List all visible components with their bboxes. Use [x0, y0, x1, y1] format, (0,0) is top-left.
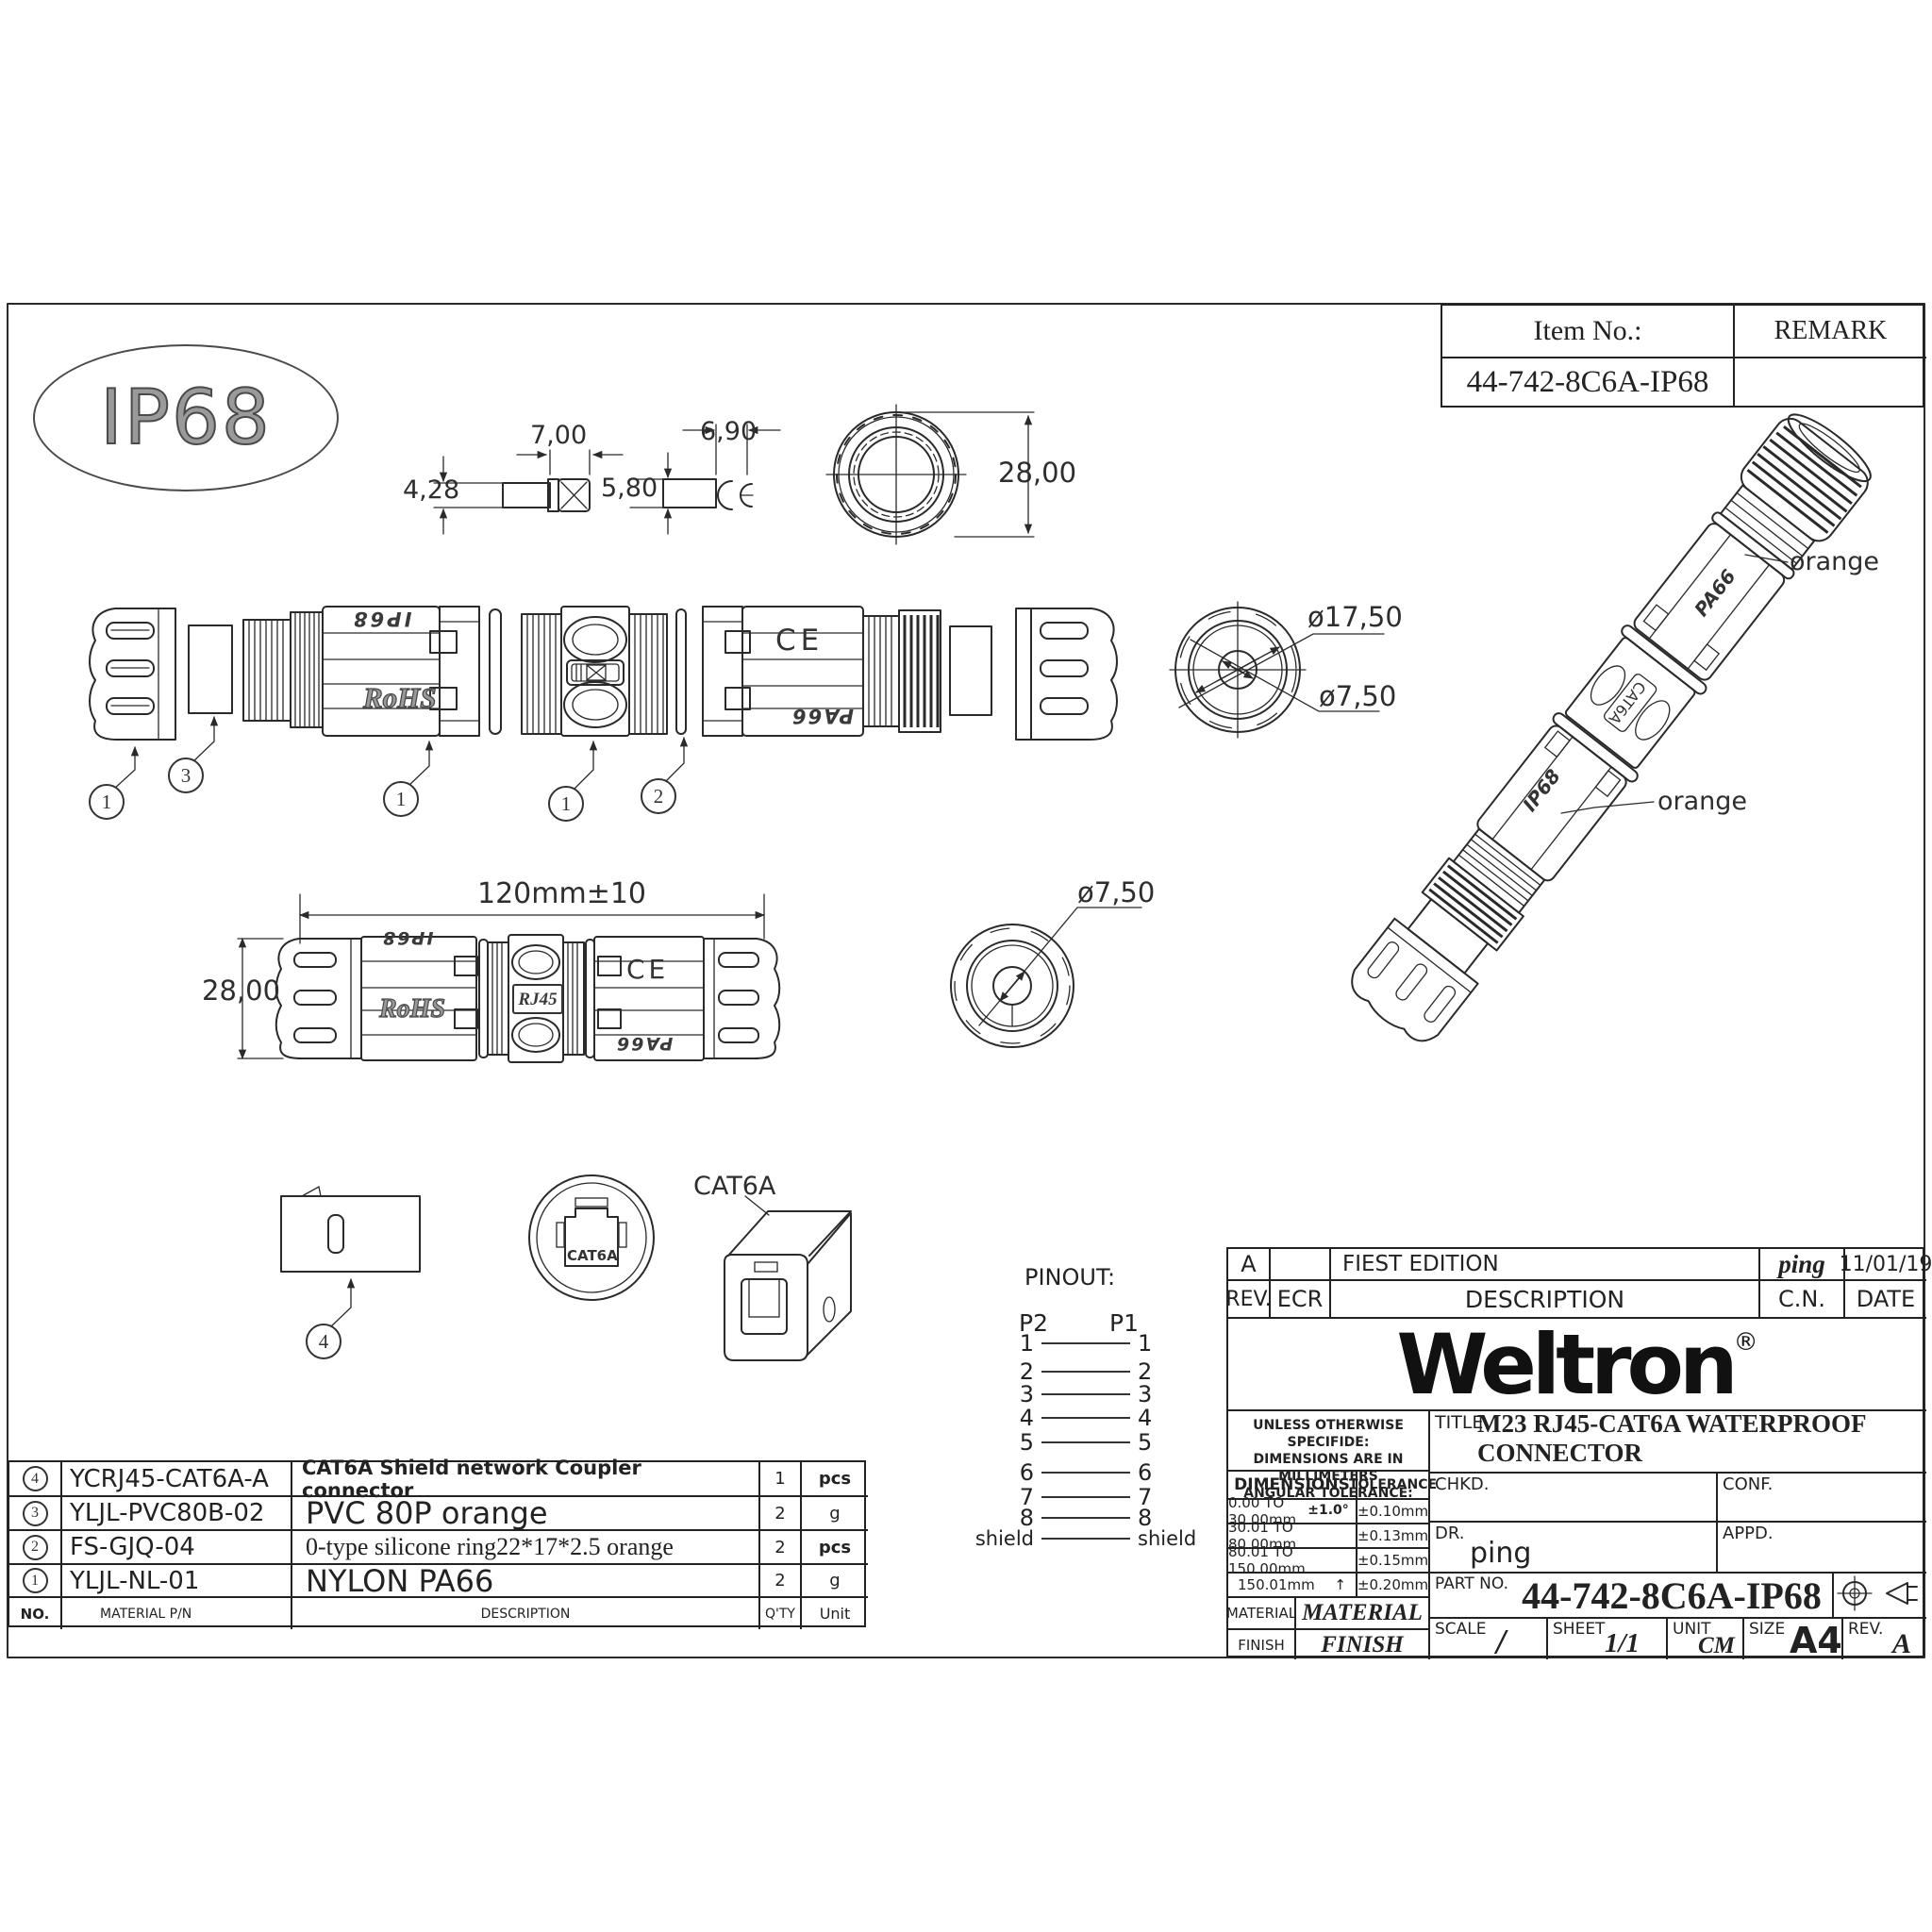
- dim-clip-length: 6,90: [700, 419, 757, 444]
- tolerance-note: UNLESS OTHERWISE SPECIFIDE: DIMENSIONS A…: [1228, 1409, 1428, 1470]
- pin-detail-view: [434, 450, 623, 534]
- bom-no-4: 4: [23, 1466, 48, 1491]
- third-angle-projection-icon: [1834, 1574, 1921, 1613]
- size-label: SIZE: [1749, 1622, 1785, 1638]
- pinout-title: PINOUT:: [1024, 1266, 1115, 1289]
- pin-wire: [1041, 1496, 1130, 1498]
- ecr-label: ECR: [1277, 1286, 1324, 1312]
- title-block: A FIEST EDITION ping 11/01/19 REV. ECR D…: [1226, 1247, 1924, 1657]
- signed-by: ping: [1778, 1250, 1825, 1279]
- bom-header-qty-text: Q'TY: [765, 1607, 795, 1622]
- bom-no-cell: 4: [9, 1462, 60, 1495]
- scale-value: /: [1496, 1628, 1506, 1657]
- dim-ring-id: ø7,50: [1319, 683, 1396, 710]
- part-no-label: PART NO.: [1435, 1576, 1508, 1592]
- bom-no-cell: 2: [9, 1529, 60, 1563]
- bom-qty-cell: 2: [758, 1495, 800, 1529]
- unit-value: CM: [1698, 1634, 1735, 1657]
- remark-label: REMARK: [1774, 316, 1888, 346]
- description-label: DESCRIPTION: [1465, 1286, 1624, 1313]
- pin-wire: [1041, 1393, 1130, 1395]
- remark-value-empty: [1733, 357, 1926, 406]
- bom-qty-3: 2: [774, 1504, 785, 1524]
- bom-pn-2: FS-GJQ-04: [70, 1533, 195, 1561]
- rev-label: REV.: [1225, 1288, 1271, 1311]
- pinout-row: 33: [970, 1382, 1196, 1407]
- bom-header-unit-text: Unit: [820, 1605, 851, 1623]
- brand-logo: Weltron ®: [1228, 1317, 1926, 1409]
- dim-pin-length: 7,00: [530, 423, 587, 448]
- pin-right: 6: [1130, 1459, 1196, 1486]
- dims-header: DIMENSIONS: [1234, 1475, 1350, 1494]
- tol-value-2: ±0.13mm: [1357, 1527, 1428, 1544]
- tolerance-note-1: UNLESS OTHERWISE SPECIFIDE:: [1232, 1417, 1424, 1451]
- dim-pin-height: 4,28: [403, 477, 459, 503]
- pinout-row: 55: [970, 1430, 1196, 1455]
- pin-left: 4: [970, 1405, 1041, 1431]
- material-label: MATERIAL: [1226, 1605, 1296, 1622]
- bom-unit-cell: g: [800, 1495, 868, 1529]
- knob-front-view: [951, 908, 1141, 1047]
- edition-text: FIEST EDITION: [1342, 1252, 1499, 1276]
- callout-2-oring: 2: [641, 778, 676, 814]
- pin-wire: [1041, 1417, 1130, 1419]
- pin-wire: [1041, 1441, 1130, 1443]
- exploded-pa66-marking: PA66: [791, 706, 854, 725]
- bom-pn-cell: YCRJ45-CAT6A-A: [60, 1462, 291, 1495]
- callout-3-sleeve: 3: [168, 758, 204, 793]
- pin-right: shield: [1130, 1527, 1196, 1550]
- bom-pn-4: YCRJ45-CAT6A-A: [70, 1465, 269, 1493]
- assembled-view: [238, 894, 779, 1062]
- tol-value-4: ±0.20mm: [1357, 1576, 1428, 1593]
- pin-wire: [1041, 1538, 1130, 1540]
- bom-header-qty: Q'TY: [758, 1596, 800, 1629]
- pin-left: 1: [970, 1330, 1041, 1357]
- bom-header-unit: Unit: [800, 1596, 868, 1629]
- bom-unit-2: pcs: [819, 1538, 851, 1557]
- bom-qty-2: 2: [774, 1538, 785, 1557]
- engineering-drawing-sheet: PA66 CAT6A IP68 IP68 Item No.: REMARK 44…: [0, 0, 1932, 1932]
- bom-no-cell: 1: [9, 1563, 60, 1596]
- rev2-label: REV.: [1848, 1622, 1883, 1638]
- bom-unit-3: g: [829, 1504, 840, 1524]
- conf-label: CONF.: [1723, 1476, 1773, 1493]
- callout-1-coupler: 1: [548, 786, 584, 822]
- orange-label-top: orange: [1790, 549, 1879, 575]
- exploded-ip68-marking: IP68: [351, 608, 411, 628]
- bom-unit-4: pcs: [819, 1469, 851, 1489]
- pinout-row: 11: [970, 1331, 1196, 1356]
- material-value: MATERIAL: [1302, 1600, 1423, 1626]
- date-label: DATE: [1857, 1286, 1915, 1312]
- exploded-rohs-marking: RoHS: [363, 683, 437, 712]
- assembled-ip68-marking: IP68: [381, 928, 433, 946]
- dr-label: DR.: [1435, 1525, 1464, 1542]
- brand-logo-text: Weltron: [1396, 1316, 1733, 1413]
- appd-label: APPD.: [1723, 1525, 1774, 1542]
- bom-pn-cell: YLJL-PVC80B-02: [60, 1495, 291, 1529]
- rj45-label-text: RJ45: [518, 991, 557, 1008]
- title-value: M23 RJ45-CAT6A WATERPROOF CONNECTOR: [1477, 1409, 1923, 1468]
- chkd-cell: CHKD.: [1428, 1472, 1716, 1521]
- assembled-ce-marking: CE: [626, 957, 669, 983]
- bom-qty-cell: 1: [758, 1462, 800, 1495]
- tol-range-4: 150.01mm: [1238, 1576, 1315, 1593]
- bom-qty-cell: 2: [758, 1529, 800, 1563]
- title-label: TITLE: [1435, 1414, 1483, 1432]
- bom-header-no-text: NO.: [21, 1606, 50, 1623]
- dim-overall-length: 120mm±10: [477, 880, 646, 908]
- exploded-view: [90, 607, 1117, 791]
- ip68-badge-text: IP68: [100, 380, 272, 456]
- tol-range-4-arrow: ↑: [1334, 1576, 1346, 1593]
- bom-desc-cell: PVC 80P orange: [291, 1495, 758, 1529]
- pin-right: 5: [1130, 1429, 1196, 1456]
- bom-desc-cell: NYLON PA66: [291, 1563, 758, 1596]
- conf-cell: CONF.: [1716, 1472, 1926, 1521]
- parts-table: 4 YCRJ45-CAT6A-A CAT6A Shield network Co…: [8, 1460, 866, 1627]
- bom-pn-1: YLJL-NL-01: [70, 1567, 199, 1595]
- bom-qty-cell: 2: [758, 1563, 800, 1596]
- tol-value-1: ±0.10mm: [1357, 1503, 1428, 1520]
- pin-right: 3: [1130, 1381, 1196, 1407]
- cn-label: C.N.: [1778, 1286, 1825, 1312]
- chkd-label: CHKD.: [1435, 1476, 1490, 1493]
- dr-cell: DR. ping: [1428, 1521, 1716, 1572]
- tol-header: TOLERANCE: [1349, 1477, 1437, 1492]
- callout-1-capnut: 1: [89, 784, 125, 820]
- pin-left: 3: [970, 1381, 1041, 1407]
- bom-desc-3: PVC 80P orange: [306, 1495, 548, 1531]
- bom-header-pn-text: MATERIAL P/N: [100, 1607, 192, 1622]
- ecr-value-empty: [1269, 1249, 1329, 1279]
- cat6a-callout-label: CAT6A: [693, 1174, 775, 1199]
- jack-cat6a-marking: CAT6A: [567, 1249, 616, 1263]
- pin-left: 6: [970, 1459, 1041, 1486]
- tol-value-3: ±0.15mm: [1357, 1552, 1428, 1569]
- bom-qty-4: 1: [774, 1469, 785, 1489]
- item-no-value: 44-742-8C6A-IP68: [1467, 365, 1709, 400]
- bom-unit-cell: g: [800, 1563, 868, 1596]
- rev2-value: A: [1892, 1630, 1911, 1658]
- bom-unit-cell: pcs: [800, 1529, 868, 1563]
- size-cell: SIZE A4: [1742, 1617, 1841, 1659]
- pin-left: 5: [970, 1429, 1041, 1456]
- projection-symbol-cell: [1832, 1572, 1926, 1617]
- bom-no-3: 3: [23, 1501, 48, 1526]
- sheet-value: 1/1: [1605, 1630, 1640, 1657]
- rev-value: A: [1241, 1251, 1256, 1277]
- sheet-cell: SHEET 1/1: [1546, 1617, 1666, 1659]
- bom-unit-cell: pcs: [800, 1462, 868, 1495]
- item-block: Item No.: REMARK 44-742-8C6A-IP68: [1441, 304, 1924, 408]
- iso-connector: PA66 CAT6A IP68: [1341, 403, 1882, 1053]
- bom-no-2: 2: [23, 1535, 48, 1560]
- coupler-detail: [281, 1175, 851, 1360]
- bom-desc-1: NYLON PA66: [306, 1563, 493, 1599]
- orange-label-mid: orange: [1657, 789, 1747, 814]
- bom-desc-cell: CAT6A Shield network Coupler connector: [291, 1462, 758, 1495]
- bom-unit-1: g: [829, 1571, 840, 1591]
- bom-header-no: NO.: [9, 1596, 60, 1629]
- bom-desc-cell: 0-type silicone ring22*17*2.5 orange: [291, 1529, 758, 1563]
- bom-pn-cell: FS-GJQ-04: [60, 1529, 291, 1563]
- finish-value: FINISH: [1321, 1632, 1404, 1658]
- pin-wire: [1041, 1342, 1130, 1344]
- registered-mark: ®: [1734, 1328, 1758, 1357]
- pin-right: 4: [1130, 1405, 1196, 1431]
- assembled-rohs-marking: RoHS: [379, 996, 445, 1023]
- unit-cell: UNIT CM: [1666, 1617, 1742, 1659]
- size-value: A4: [1790, 1623, 1842, 1658]
- pin-left: shield: [970, 1527, 1041, 1550]
- scale-label: SCALE: [1435, 1622, 1487, 1638]
- part-no-value: 44-742-8C6A-IP68: [1522, 1574, 1822, 1618]
- bom-header-desc-text: DESCRIPTION: [481, 1607, 571, 1622]
- rev2-cell: REV. A: [1841, 1617, 1926, 1659]
- iso-ip68-marking: IP68: [1518, 765, 1565, 816]
- bom-desc-2: 0-type silicone ring22*17*2.5 orange: [306, 1533, 674, 1561]
- assembled-rj45-label: RJ45: [512, 984, 563, 1014]
- ip68-badge: IP68: [33, 344, 339, 491]
- bom-no-cell: 3: [9, 1495, 60, 1529]
- pin-wire: [1041, 1472, 1130, 1474]
- bom-no-1: 1: [23, 1568, 48, 1593]
- title-cell: TITLE M23 RJ45-CAT6A WATERPROOF CONNECTO…: [1428, 1409, 1926, 1472]
- pinout-row-shield: shieldshield: [970, 1526, 1196, 1551]
- sheet-label: SHEET: [1553, 1622, 1605, 1638]
- bom-qty-1: 2: [774, 1571, 785, 1591]
- bom-header-pn: MATERIAL P/N: [60, 1596, 291, 1629]
- callout-1-body: 1: [383, 781, 419, 817]
- appd-cell: APPD.: [1716, 1521, 1926, 1572]
- pinout-row: 44: [970, 1406, 1196, 1430]
- bom-header-desc: DESCRIPTION: [291, 1596, 758, 1629]
- dim-knob-id: ø7,50: [1077, 879, 1155, 907]
- bom-pn-3: YLJL-PVC80B-02: [70, 1499, 264, 1527]
- callout-4-coupler-detail: 4: [306, 1324, 341, 1359]
- dim-cap-od: 28,00: [998, 459, 1076, 487]
- pinout-row: 66: [970, 1460, 1196, 1485]
- orange-leader-top: [1745, 555, 1788, 562]
- pin-wire: [1041, 1517, 1130, 1519]
- pin-right: 1: [1130, 1330, 1196, 1357]
- finish-label: FINISH: [1238, 1637, 1285, 1654]
- dim-clip-height: 5,80: [601, 475, 658, 501]
- dim-ring-od: ø17,50: [1307, 604, 1403, 631]
- pin-wire: [1041, 1371, 1130, 1373]
- bom-pn-cell: YLJL-NL-01: [60, 1563, 291, 1596]
- assembled-pa66-marking: PA66: [615, 1034, 673, 1052]
- dr-value: ping: [1470, 1540, 1531, 1568]
- part-no-cell: PART NO. 44-742-8C6A-IP68: [1428, 1572, 1832, 1617]
- dim-body-od: 28,00: [202, 977, 280, 1005]
- scale-cell: SCALE /: [1428, 1617, 1546, 1659]
- rev-date: 11/01/19: [1840, 1253, 1932, 1276]
- item-no-label: Item No.:: [1534, 315, 1642, 347]
- exploded-ce-marking: CE: [775, 626, 824, 656]
